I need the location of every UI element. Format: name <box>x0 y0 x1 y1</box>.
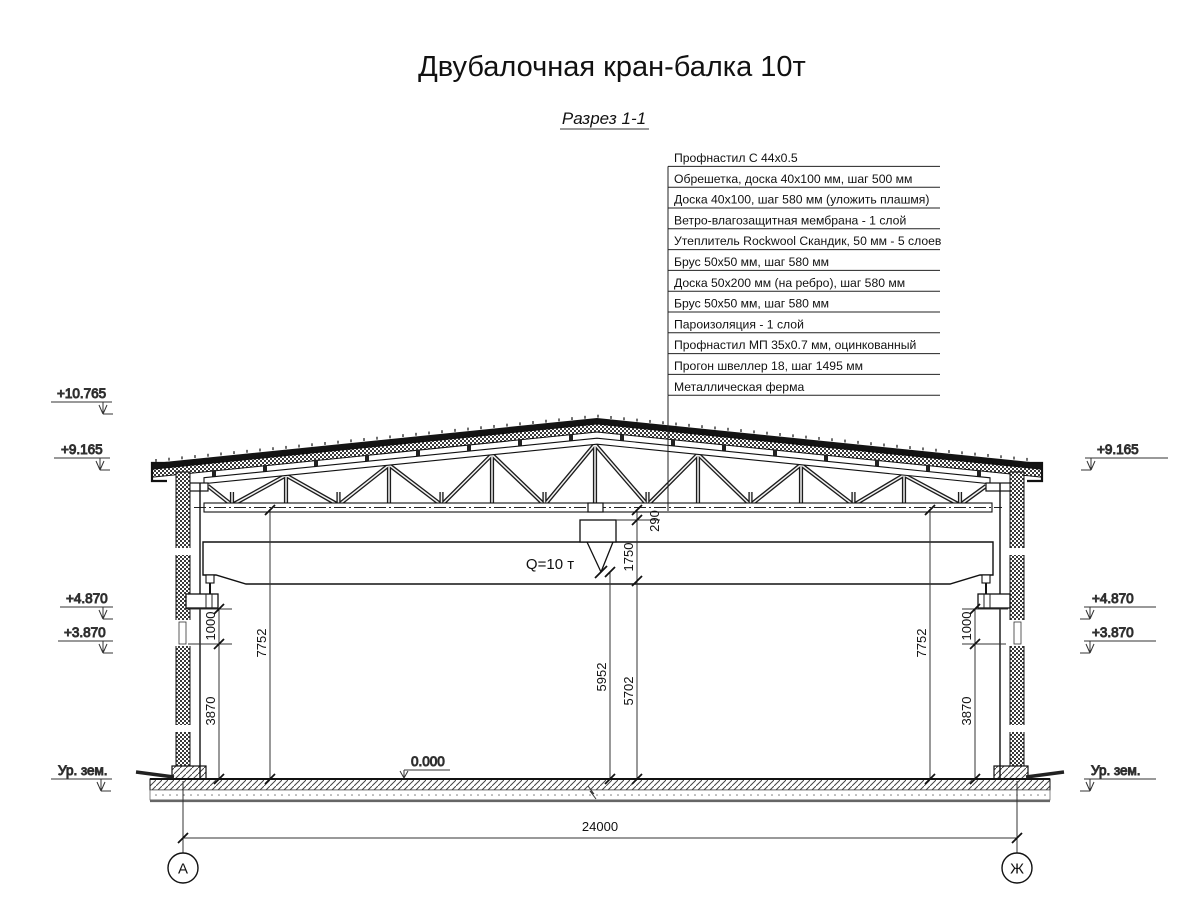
svg-text:+4.870: +4.870 <box>1092 591 1134 606</box>
dim-3870-left: 3870 <box>203 697 218 726</box>
callout-row: Металлическая ферма <box>674 380 804 394</box>
axis-letter-left: А <box>178 861 188 878</box>
dim-7752-left: 7752 <box>254 629 269 658</box>
elevation-ridge-left: +10.765 <box>51 386 113 414</box>
left-wall <box>172 472 206 779</box>
elevation-corbel-left: +3.870 <box>58 625 113 653</box>
svg-text:0.000: 0.000 <box>411 754 445 769</box>
crane-trolley <box>580 520 616 542</box>
axis-markers: А Ж <box>168 853 1032 883</box>
callout-row: Утеплитель Rockwool Скандик, 50 мм - 5 с… <box>674 234 941 248</box>
callout-row: Обрешетка, доска 40х100 мм, шаг 500 мм <box>674 172 912 186</box>
dim-3870-right: 3870 <box>959 697 974 726</box>
left-plinth <box>172 766 206 779</box>
svg-text:+9.165: +9.165 <box>1097 442 1139 457</box>
elevation-eaves-left: +9.165 <box>54 442 110 470</box>
svg-text:Ур. зем.: Ур. зем. <box>1091 763 1141 778</box>
axis-letter-right: Ж <box>1010 861 1024 878</box>
dim-290: 290 <box>647 510 662 532</box>
elevation-eaves-right: +9.165 <box>1081 442 1168 470</box>
crane-runway-beams <box>186 594 1010 608</box>
section-label: Разрез 1-1 <box>562 109 646 128</box>
drawing-sheet: Двубалочная кран-балка 10т Разрез 1-1 <box>0 0 1200 900</box>
callout-row: Профнастил МП 35х0.7 мм, оцинкованный <box>674 338 916 352</box>
crane-capacity-label: Q=10 т <box>526 556 574 573</box>
elevation-floor-zero: 0.000 <box>400 754 450 778</box>
svg-text:+9.165: +9.165 <box>61 442 103 457</box>
floor-slab <box>136 772 1064 801</box>
svg-text:+3.870: +3.870 <box>64 625 106 640</box>
left-end-truck <box>206 575 214 583</box>
elevation-ground-left: Ур. зем. <box>51 763 112 791</box>
right-end-truck <box>982 575 990 583</box>
section-drawing: Двубалочная кран-балка 10т Разрез 1-1 <box>0 0 1200 900</box>
left-apron <box>136 772 174 777</box>
dim-5952: 5952 <box>594 663 609 692</box>
svg-text:Ур. зем.: Ур. зем. <box>58 763 108 778</box>
dim-5702: 5702 <box>621 677 636 706</box>
callout-row: Ветро-влагозащитная мембрана - 1 слой <box>674 213 906 227</box>
right-wall <box>994 472 1028 779</box>
right-plinth <box>994 766 1028 779</box>
truss-bottom-chord <box>194 503 1002 512</box>
right-apron <box>1026 772 1064 777</box>
dim-1000-right: 1000 <box>959 612 974 641</box>
svg-text:+3.870: +3.870 <box>1092 625 1134 640</box>
dim-1000-left: 1000 <box>203 612 218 641</box>
elevation-corbel-right: +3.870 <box>1080 625 1156 653</box>
elevation-rail-left: +4.870 <box>60 591 113 619</box>
callout-row: Прогон швеллер 18, шаг 1495 мм <box>674 359 863 373</box>
svg-text:+4.870: +4.870 <box>66 591 108 606</box>
callout-row: Брус 50х50 мм, шаг 580 мм <box>674 255 829 269</box>
dim-7752-right: 7752 <box>914 629 929 658</box>
callout-row: Доска 50х200 мм (на ребро), шаг 580 мм <box>674 276 905 290</box>
elevation-rail-right: +4.870 <box>1080 591 1156 619</box>
crane-girder <box>203 542 993 594</box>
callout-row: Брус 50х50 мм, шаг 580 мм <box>674 297 829 311</box>
page-title: Двубалочная кран-балка 10т <box>418 51 806 83</box>
chord-center-plate <box>588 503 603 512</box>
elevation-ground-right: Ур. зем. <box>1080 763 1156 791</box>
svg-text:+10.765: +10.765 <box>57 386 106 401</box>
dim-1750: 1750 <box>621 543 636 572</box>
callout-row: Пароизоляция - 1 слой <box>674 317 804 331</box>
dim-24000: 24000 <box>582 819 618 834</box>
callout-row: Профнастил С 44х0.5 <box>674 151 798 165</box>
callout-row: Доска 40х100, шаг 580 мм (уложить плашмя… <box>674 193 929 207</box>
